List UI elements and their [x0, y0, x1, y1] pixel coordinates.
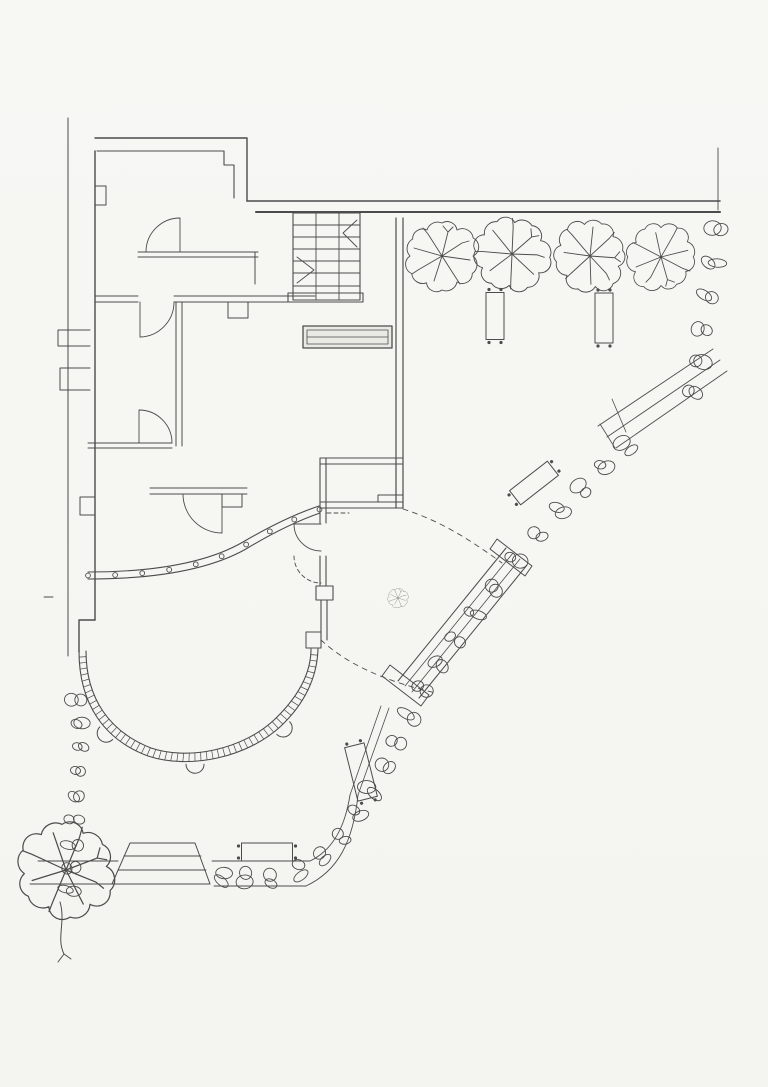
trees	[0, 202, 707, 938]
bottom-walkway-line	[350, 706, 389, 795]
glass-mullion-dot	[113, 573, 118, 578]
interior-walls-line	[316, 586, 333, 600]
terrace-hatch-tick	[80, 668, 87, 669]
rock-stone	[554, 505, 573, 521]
doors-line	[183, 494, 222, 533]
terrace-hatch-tick	[249, 738, 253, 746]
rock-stone	[291, 858, 306, 871]
rock-stone	[357, 780, 376, 794]
bench-seat	[595, 293, 613, 343]
terrace-hatch-tick	[177, 753, 178, 761]
rock-stone	[212, 872, 230, 889]
upper-path-line	[600, 399, 626, 448]
terrace-hatch-tick	[280, 714, 287, 720]
rock-stone	[238, 865, 252, 880]
terrace-hatch-tick	[183, 753, 184, 761]
dashed-paths-line	[321, 640, 436, 693]
rock-stone	[689, 320, 706, 338]
glass-mullion-dot	[140, 571, 145, 576]
doors-line	[294, 556, 321, 583]
stair-line	[343, 220, 357, 247]
building-walls-line	[79, 620, 95, 652]
glass-wall-line	[88, 513, 320, 579]
rock-stone	[525, 524, 542, 541]
bench-seat	[510, 461, 559, 505]
glass-mullion-dot	[86, 573, 91, 578]
glass-mullion-dot	[219, 554, 224, 559]
interior-walls-line	[88, 443, 172, 448]
bench-foot	[557, 469, 561, 473]
terrace-curve-line	[86, 649, 311, 753]
bench-seat	[242, 843, 293, 861]
terrace-hatch-tick	[291, 701, 298, 706]
terrace-hatch-tick	[217, 749, 219, 757]
interior-walls-line	[176, 302, 182, 446]
site-boundary	[44, 118, 720, 656]
bottom-walkway-line	[118, 856, 206, 870]
terrace-curve-line	[79, 649, 318, 762]
terrace-hatch-tick	[307, 671, 314, 673]
bench-foot	[499, 288, 502, 291]
doors-line	[140, 302, 174, 337]
rock-stone	[393, 736, 408, 751]
rock-stone	[70, 837, 86, 853]
terrace-bump	[277, 722, 296, 741]
bench-foot	[345, 742, 349, 746]
terrace-hatch-tick	[120, 734, 125, 741]
bench-foot	[237, 844, 240, 847]
casework	[303, 326, 392, 348]
terrace-hatch-tick	[103, 719, 109, 725]
rock-stone	[610, 432, 633, 453]
terrace-hatch-tick	[153, 750, 156, 758]
benches	[237, 288, 613, 861]
bottom-walkway	[30, 706, 389, 886]
bench-foot	[499, 341, 502, 344]
interior-walls-line	[378, 495, 403, 502]
rock-stone	[703, 220, 722, 237]
terrace-hatch-tick	[228, 746, 231, 754]
building-walls-line	[288, 293, 363, 302]
terrace-hatch-tick	[254, 735, 259, 743]
glass-mullions	[86, 507, 322, 578]
terrace-hatch-tick	[96, 710, 103, 715]
bottom-walkway-line	[112, 843, 210, 884]
bench-foot	[514, 502, 518, 506]
rock-stone	[623, 443, 640, 458]
terrace-hatch-tick	[125, 738, 130, 745]
tree-symbol	[614, 210, 707, 302]
stair-line	[316, 213, 339, 300]
terrace-hatch-tick	[309, 666, 316, 667]
bench-seat	[486, 293, 504, 340]
rock-stone	[419, 683, 435, 699]
ramp-line	[405, 553, 513, 686]
terrace-hatch-tick	[79, 657, 86, 658]
upper-path-line	[607, 360, 720, 437]
ramp	[382, 539, 532, 706]
bench-symbol	[486, 288, 504, 344]
dashed-paths	[321, 509, 502, 693]
terrace-bump	[186, 764, 204, 773]
terrace-hatch-tick	[111, 727, 117, 733]
terrace-hatch-tick	[223, 748, 225, 756]
interior-walls-line	[95, 296, 315, 302]
interior-walls-line	[138, 252, 258, 284]
bench-foot	[360, 801, 364, 805]
bench-foot	[237, 856, 240, 859]
rock-stone	[384, 734, 399, 749]
ramp-line	[412, 559, 520, 692]
terrace-hatch-tick	[90, 700, 97, 704]
site-boundary-line	[60, 368, 90, 390]
site-plan-drawing	[0, 0, 768, 1087]
terrace-hatch-tick	[107, 723, 113, 729]
terrace-hatch-tick	[306, 677, 313, 679]
rocks	[57, 220, 729, 897]
bench-foot	[358, 739, 362, 743]
bench-foot	[294, 856, 297, 859]
stair	[293, 213, 360, 300]
rock-stone	[535, 531, 549, 543]
tree-symbol	[0, 803, 133, 938]
terrace-hatch-tick	[206, 752, 207, 760]
terrace-hatch-tick	[159, 751, 162, 759]
building-walls-line	[80, 497, 95, 515]
terrace-hatch-tick	[171, 753, 173, 761]
terrace-hatch-tick	[311, 655, 318, 656]
building-walls	[79, 138, 403, 652]
rock-stone	[339, 836, 352, 846]
interior-walls	[88, 252, 403, 648]
rock-stone	[63, 692, 79, 707]
glass-wall-line	[88, 506, 319, 572]
terrace-hatch	[79, 655, 318, 762]
rock-stone	[708, 258, 727, 268]
terrace-hatch-tick	[272, 722, 278, 729]
bottom-walkway-line	[306, 795, 358, 886]
interior-walls-line	[222, 494, 242, 507]
ramp-line	[419, 565, 527, 698]
upper-path-line	[598, 349, 713, 426]
terrace-hatch-tick	[165, 752, 167, 760]
rock-stone	[261, 866, 279, 884]
shrub-symbol	[386, 587, 410, 610]
terrace-hatch-tick	[244, 740, 248, 748]
bench-foot	[507, 493, 511, 497]
terrace-hatch-tick	[276, 718, 283, 725]
bench-symbol	[595, 288, 613, 347]
terrace-hatch-tick	[141, 746, 145, 754]
ramp-line	[398, 548, 506, 681]
terrace-hatch-tick	[239, 742, 243, 750]
terrace-hatch-tick	[87, 695, 94, 699]
rock-stone	[567, 475, 589, 496]
doors-line	[139, 410, 172, 443]
glass-mullion-dot	[292, 517, 297, 522]
terrace-hatch-tick	[263, 729, 268, 736]
rock-stone	[395, 705, 416, 722]
terrace-bump	[93, 727, 112, 746]
tree-symbol	[549, 214, 631, 298]
terrace-hatch-tick	[81, 674, 88, 676]
glass-mullion-dot	[167, 567, 172, 572]
shrub-marker	[386, 587, 410, 610]
terrace-hatch-tick	[298, 692, 305, 696]
bottom-walkway-line	[212, 861, 310, 886]
glass-mullion-dot	[193, 562, 198, 567]
rock-stone	[694, 286, 713, 303]
bench-foot	[487, 341, 490, 344]
terrace-hatch-tick	[259, 732, 264, 739]
terrace-hatch-tick	[82, 679, 89, 681]
rock-stone	[699, 322, 715, 337]
building-walls-line	[95, 138, 247, 201]
terrace-bumps	[93, 722, 295, 774]
bench-foot	[373, 798, 377, 802]
terrace-curve	[79, 649, 318, 762]
terrace-hatch-tick	[301, 687, 308, 690]
site-boundary-line	[58, 330, 90, 346]
rock-stone	[596, 458, 617, 477]
doors-line	[146, 218, 180, 252]
upper-path-line	[616, 371, 727, 448]
terrace-hatch-tick	[295, 696, 302, 700]
scanned-site-plan-page	[0, 0, 768, 1087]
building-walls-line	[97, 151, 234, 198]
terrace-hatch-tick	[268, 725, 274, 732]
bench-foot	[549, 459, 553, 463]
interior-walls-line	[150, 488, 247, 494]
terrace-hatch-tick	[310, 660, 317, 661]
terrace-hatch-tick	[233, 744, 236, 752]
upper-path	[598, 349, 727, 448]
dashed-paths-line	[403, 509, 502, 563]
terrace-hatch-tick	[131, 740, 136, 748]
bench-foot	[596, 344, 599, 347]
bench-foot	[596, 288, 599, 291]
rock-stone	[443, 630, 457, 643]
tree-trunk-line	[58, 902, 71, 962]
interior-walls-line	[320, 458, 403, 508]
bench-foot	[608, 288, 611, 291]
bench-foot	[608, 344, 611, 347]
terrace-hatch-tick	[92, 705, 99, 709]
terrace-hatch-tick	[147, 748, 150, 756]
terrace-hatch-tick	[84, 685, 91, 688]
rock-stone	[469, 608, 488, 621]
bench-foot	[294, 844, 297, 847]
terrace-hatch-tick	[116, 731, 122, 738]
terrace-hatch-tick	[85, 690, 92, 693]
terrace-hatch-tick	[303, 682, 310, 685]
bench-foot	[487, 288, 490, 291]
terrace-hatch-tick	[80, 662, 87, 663]
terrace-hatch-tick	[212, 751, 213, 759]
building-walls-line	[95, 186, 106, 205]
terrace-hatch-tick	[136, 743, 140, 751]
bench-symbol	[237, 843, 297, 861]
rock-stone	[579, 486, 593, 500]
tree-trunk	[58, 902, 71, 962]
glass-mullion-dot	[267, 529, 272, 534]
terrace-hatch-tick	[288, 705, 295, 710]
interior-walls-line	[228, 302, 248, 318]
rock-stone	[452, 634, 467, 650]
glass-mullion-dot	[244, 542, 249, 547]
rock-stone	[373, 756, 391, 774]
interior-walls-line	[320, 508, 326, 586]
rock-stone	[381, 759, 398, 776]
glass-wall	[88, 506, 320, 579]
terrace-hatch-tick	[99, 715, 106, 720]
tree-symbol	[406, 222, 479, 292]
bench-symbol	[344, 738, 379, 805]
terrace-hatch-tick	[284, 710, 291, 716]
doors-line	[294, 524, 321, 551]
interior-walls-line	[306, 632, 321, 648]
stair-line	[293, 225, 360, 286]
rock-stone	[74, 717, 91, 729]
bench-symbol	[506, 458, 562, 507]
rock-stone	[77, 741, 91, 753]
